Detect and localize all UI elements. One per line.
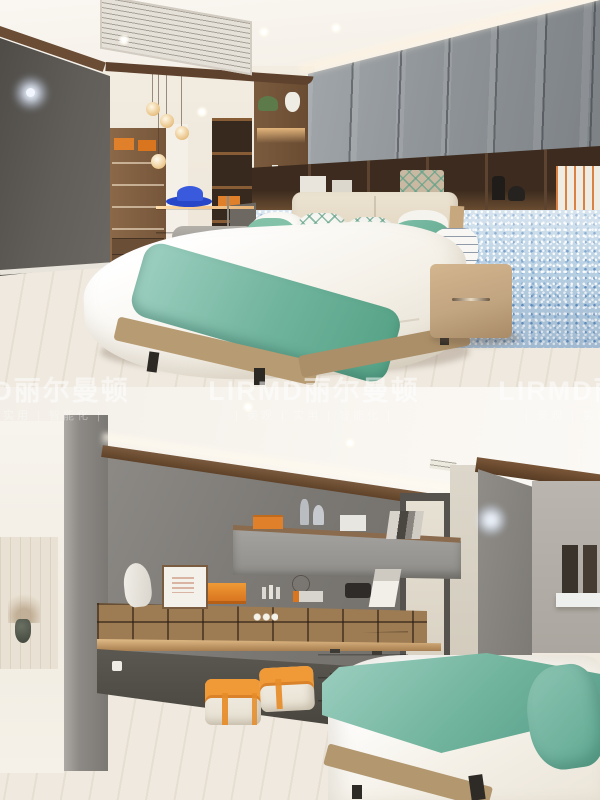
pouf-stripe <box>222 693 228 725</box>
bottle <box>262 587 266 599</box>
display-niche <box>562 545 578 593</box>
bottle <box>269 585 273 599</box>
dark-wall-panel <box>0 38 110 276</box>
pouf-stool <box>259 666 315 713</box>
grey-column <box>64 415 108 771</box>
white-box <box>340 515 366 531</box>
pendant-globe-light <box>146 102 160 116</box>
downlight <box>258 26 270 38</box>
bottle <box>276 587 280 599</box>
silver-figurine <box>300 499 309 525</box>
photo-top-bedroom <box>0 0 600 387</box>
pendant-globe-light <box>151 154 166 169</box>
pouf-stripe <box>252 693 257 725</box>
two-photo-collage: LIRMD丽尔曼顿 | 美观 | 实用 | 智能化 | LIRMD丽尔曼顿 | … <box>0 0 600 800</box>
orange-box <box>138 140 156 151</box>
radio <box>293 591 323 602</box>
nightstand-handle <box>452 298 490 301</box>
downlight <box>196 106 208 118</box>
pendant-globe-light <box>175 126 189 140</box>
white-vase <box>285 92 300 112</box>
cabinet-handle <box>372 651 382 655</box>
camera-lens <box>345 583 371 598</box>
pendant-cord <box>181 68 182 128</box>
display-niche <box>583 545 597 593</box>
plant <box>258 96 278 111</box>
wall-outlet <box>112 661 122 671</box>
photo-bottom-bedroom <box>0 387 600 800</box>
orange-box <box>208 583 246 604</box>
black-figurine <box>492 176 505 200</box>
downlight <box>344 437 356 449</box>
book-set-orange-spines <box>556 166 600 210</box>
downlight <box>242 401 254 413</box>
grey-panel <box>478 467 532 685</box>
blue-hat-dome <box>177 186 203 201</box>
bird-figurines <box>252 611 278 623</box>
floor-vase <box>15 619 31 643</box>
downlight <box>330 22 342 34</box>
bed-leg <box>254 368 265 385</box>
wall-spotlight-glow <box>476 503 506 537</box>
books-row <box>386 511 424 539</box>
white-shelf <box>556 593 600 607</box>
cabinet-handle <box>330 649 340 653</box>
orange-box <box>114 138 134 150</box>
pendant-globe-light <box>160 114 174 128</box>
orange-box <box>253 515 283 529</box>
silver-figurine <box>313 505 324 525</box>
downlight <box>118 34 130 46</box>
spotlight-core <box>26 88 35 97</box>
bed-leg <box>352 785 362 799</box>
leather-nightstand <box>430 264 512 338</box>
dresser-lit-top-edge <box>156 206 254 209</box>
framed-art-print <box>172 577 194 593</box>
lit-niche-glow <box>257 128 305 143</box>
black-figurine <box>508 186 525 201</box>
